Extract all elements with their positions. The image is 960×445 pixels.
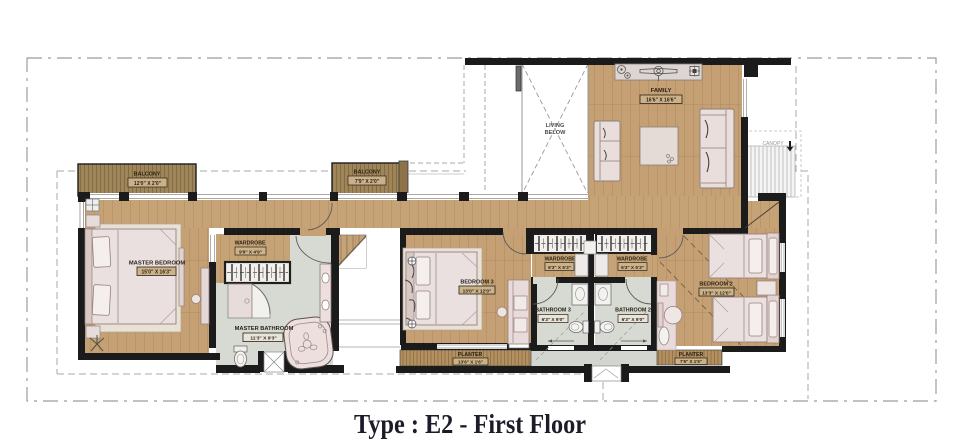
svg-text:WARDROBE: WARDROBE [545, 257, 576, 263]
svg-text:BALCONY: BALCONY [134, 172, 161, 178]
svg-text:BEDROOM 2: BEDROOM 2 [699, 282, 732, 288]
svg-text:PLANTER: PLANTER [679, 352, 704, 358]
svg-text:13'3" X 12'0": 13'3" X 12'0" [702, 291, 731, 297]
svg-text:BATHROOM 2: BATHROOM 2 [615, 308, 651, 314]
svg-text:13'6" X 1'6": 13'6" X 1'6" [458, 360, 483, 365]
svg-text:BEDROOM 3: BEDROOM 3 [460, 280, 493, 286]
svg-text:7'9" X 2'0": 7'9" X 2'0" [355, 179, 380, 185]
svg-text:6'3" X 9'0": 6'3" X 9'0" [622, 317, 645, 322]
svg-text:6'3" X 5'3": 6'3" X 5'3" [548, 265, 571, 270]
svg-text:MASTER BEDROOM: MASTER BEDROOM [129, 261, 186, 267]
svg-text:BALCONY: BALCONY [354, 170, 381, 176]
svg-text:6'3" X 9'0": 6'3" X 9'0" [542, 317, 565, 322]
svg-text:15'0" X 16'3": 15'0" X 16'3" [142, 270, 173, 276]
svg-text:9'9" X 4'9": 9'9" X 4'9" [239, 249, 262, 254]
svg-text:Type : E2 - First Floor: Type : E2 - First Floor [354, 409, 586, 439]
svg-text:FAMILY: FAMILY [651, 88, 672, 94]
svg-text:WARDROBE: WARDROBE [617, 257, 648, 263]
svg-text:7'5" X 1'5": 7'5" X 1'5" [680, 359, 702, 364]
svg-text:BATHROOM 3: BATHROOM 3 [535, 308, 571, 314]
svg-text:CANOPY: CANOPY [762, 141, 784, 147]
svg-text:WARDROBE: WARDROBE [235, 241, 266, 247]
svg-text:6'3" X 5'3": 6'3" X 5'3" [621, 265, 644, 270]
svg-text:11'3" X 9'3": 11'3" X 9'3" [250, 336, 276, 342]
svg-text:16'6" X 16'6": 16'6" X 16'6" [646, 98, 677, 104]
svg-text:BELOW: BELOW [545, 130, 567, 136]
svg-text:12'0" X 2'0": 12'0" X 2'0" [134, 181, 162, 187]
svg-text:LIVING: LIVING [546, 123, 565, 129]
svg-text:MASTER BATHROOM: MASTER BATHROOM [235, 326, 294, 332]
svg-text:13'0" X 12'0": 13'0" X 12'0" [463, 289, 492, 295]
svg-text:PLANTER: PLANTER [458, 352, 483, 358]
